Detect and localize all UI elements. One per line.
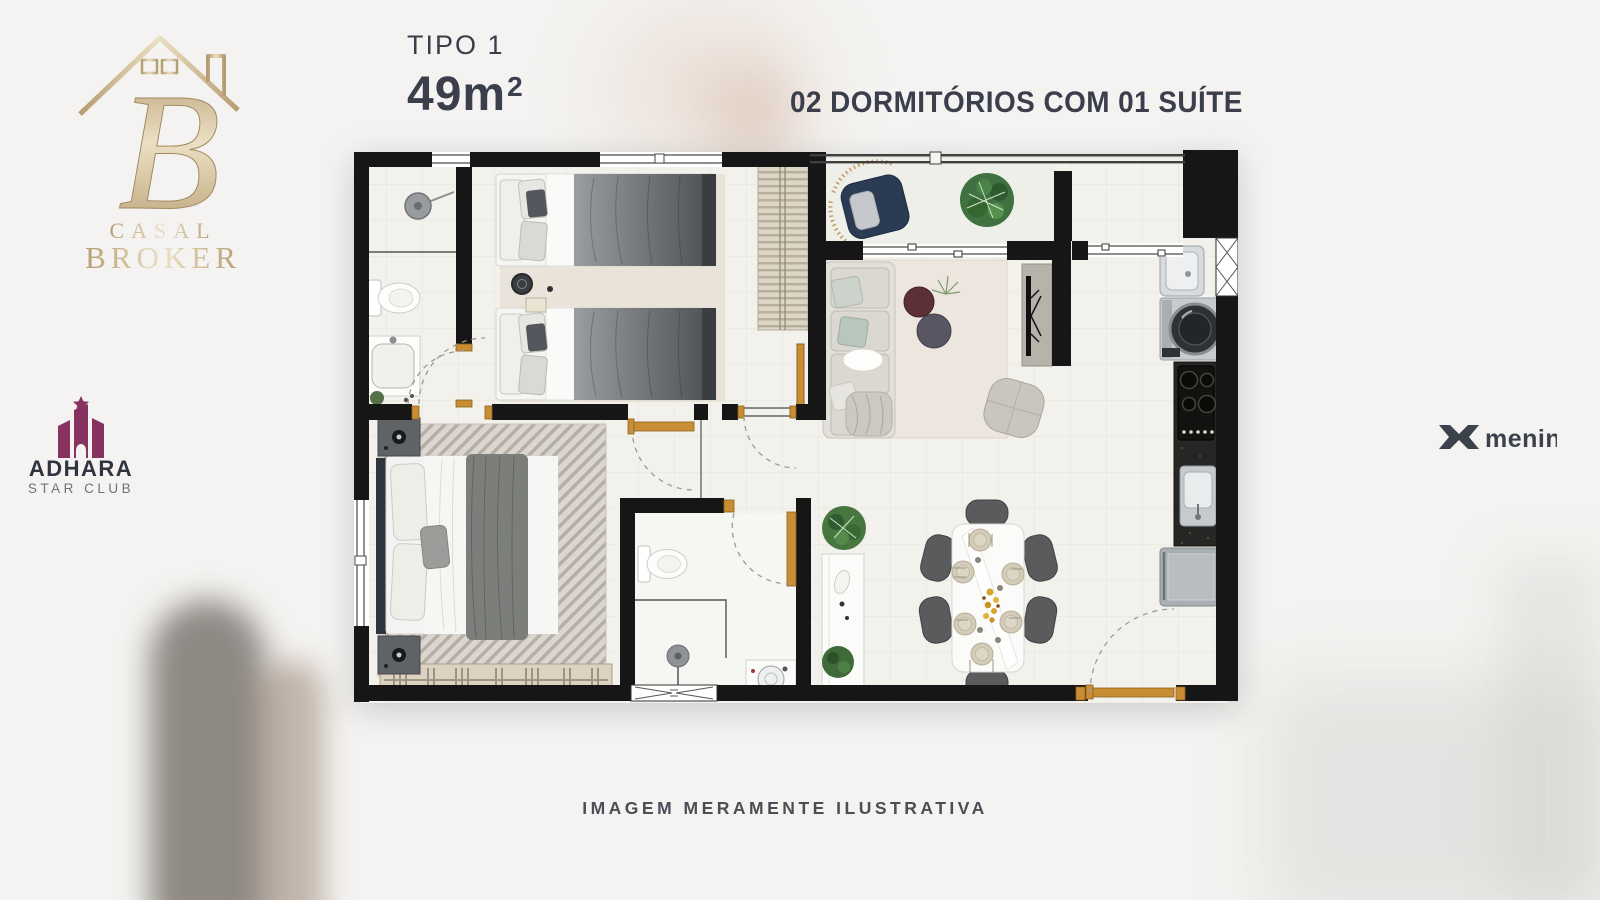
headboard bbox=[376, 458, 386, 634]
wall-bath2-top bbox=[620, 498, 724, 513]
sofa bbox=[823, 262, 895, 438]
open-door-leaf bbox=[797, 344, 804, 414]
adhara-buildings-icon bbox=[58, 396, 104, 458]
brand-line2: BROKER bbox=[85, 240, 241, 274]
menin-name: menin bbox=[1485, 425, 1557, 453]
tv bbox=[1026, 276, 1031, 356]
shaft-vent bbox=[1216, 238, 1238, 296]
twin-bed bbox=[496, 308, 716, 400]
wall-bedroom2-right bbox=[808, 152, 826, 420]
coffee-table bbox=[904, 287, 934, 317]
plan-type-label: TIPO 1 bbox=[407, 30, 524, 61]
service-window bbox=[1088, 243, 1183, 257]
dining-table bbox=[952, 524, 1024, 673]
washing-machine bbox=[1160, 298, 1220, 360]
plant bbox=[822, 506, 866, 550]
kitchen-sink bbox=[1180, 466, 1216, 526]
tv-console bbox=[1022, 264, 1052, 366]
disclaimer: IMAGEM MERAMENTE ILUSTRATIVA bbox=[582, 798, 988, 819]
window bbox=[600, 152, 722, 167]
door-leaf-bath2 bbox=[787, 512, 796, 586]
plant bbox=[370, 391, 384, 405]
menin-icon bbox=[1439, 425, 1479, 449]
marketing-slide: B CASAL BROKER TIPO 1 49m2 02 DORMITÓRIO… bbox=[0, 0, 1600, 900]
bathroom-2 bbox=[635, 513, 796, 700]
floor-vent bbox=[631, 685, 717, 701]
adhara-subtitle: STAR CLUB bbox=[28, 481, 134, 496]
floor-plan bbox=[350, 148, 1238, 715]
book bbox=[526, 298, 546, 312]
plant bbox=[960, 173, 1014, 227]
background-vase bbox=[258, 660, 324, 900]
refrigerator bbox=[1160, 548, 1218, 606]
nightstand bbox=[378, 636, 420, 674]
adhara-name: ADHARA bbox=[29, 456, 133, 481]
bathroom-sink bbox=[366, 336, 420, 396]
background-shadow bbox=[1500, 560, 1600, 900]
background-shadow bbox=[1270, 680, 1600, 900]
window bbox=[432, 152, 470, 167]
tray bbox=[843, 349, 883, 371]
adhara-logo: ADHARA STAR CLUB bbox=[28, 396, 178, 501]
master-bedroom bbox=[376, 418, 612, 696]
window bbox=[354, 500, 369, 626]
door-leaf-bedroom2 bbox=[632, 422, 694, 431]
background-vase bbox=[150, 600, 265, 900]
cooktop bbox=[1178, 366, 1216, 440]
wall-living-kitchen bbox=[1052, 260, 1071, 366]
sliding-door bbox=[863, 244, 1007, 257]
plan-headline: TIPO 1 49m2 bbox=[407, 30, 524, 122]
menin-logo: menin bbox=[1437, 421, 1557, 458]
casal-broker-logo: B CASAL BROKER bbox=[58, 12, 268, 279]
area-value: 49m2 bbox=[407, 67, 524, 122]
features-label: 02 DORMITÓRIOS COM 01 SUÍTE bbox=[790, 86, 1243, 120]
twin-bed bbox=[496, 174, 716, 266]
plant bbox=[822, 646, 854, 678]
double-bed bbox=[386, 454, 558, 640]
round-mat bbox=[512, 274, 532, 294]
door-leaf-entry bbox=[1090, 688, 1174, 697]
wall-bath-suite bbox=[456, 152, 472, 344]
nightstand bbox=[378, 418, 420, 456]
coffee-table bbox=[917, 314, 951, 348]
wardrobe bbox=[758, 164, 808, 330]
